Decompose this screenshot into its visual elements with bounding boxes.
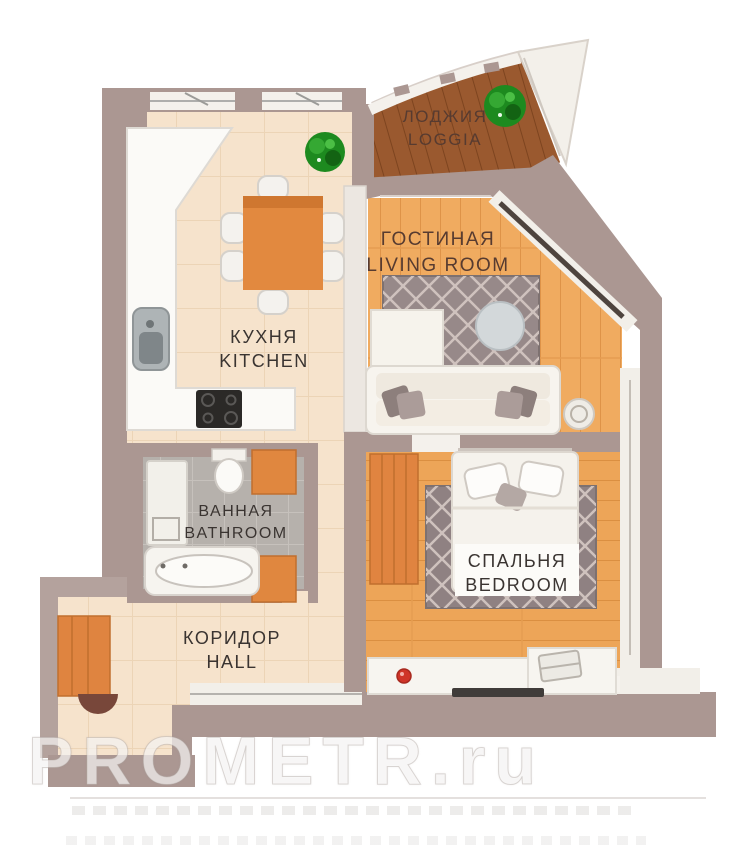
watermark-smalltext xyxy=(72,806,632,815)
sofa xyxy=(366,366,560,434)
plant-icon xyxy=(484,85,526,127)
side-chair xyxy=(564,399,594,429)
tv-stand xyxy=(371,310,443,366)
bathroom-cabinet xyxy=(252,450,296,494)
bedroom-furniture xyxy=(368,448,616,697)
wardrobe xyxy=(370,454,418,584)
blanket xyxy=(455,544,579,596)
watermark-divider xyxy=(70,797,706,799)
watermark-smalltext-2 xyxy=(66,836,646,845)
hall-wardrobe xyxy=(58,616,110,696)
plant-icon xyxy=(305,132,345,172)
sofa-pillow xyxy=(494,390,523,419)
bed xyxy=(452,448,579,596)
floorplan-drawing xyxy=(0,0,729,851)
floorplan-page: ЛОДЖИЯ LOGGIA ГОСТИНАЯ LIVING ROOM КУХНЯ… xyxy=(0,0,729,851)
red-object xyxy=(397,669,411,683)
toilet xyxy=(212,449,246,493)
faucet xyxy=(146,320,154,328)
sofa-pillow xyxy=(396,390,426,420)
dining-table xyxy=(243,196,323,290)
bathtub xyxy=(145,547,259,595)
loggia-furniture xyxy=(484,85,526,127)
laptop xyxy=(538,650,581,681)
coffee-table xyxy=(476,302,524,350)
tv-slot xyxy=(452,688,544,697)
